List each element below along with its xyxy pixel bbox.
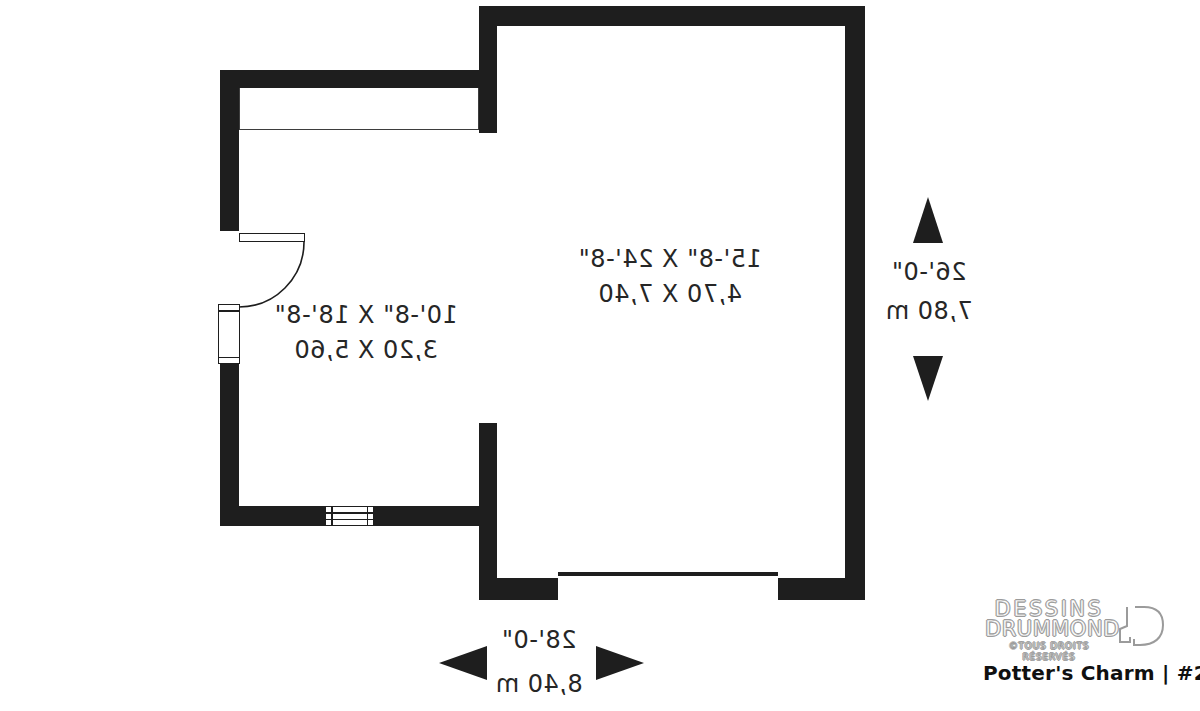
vertical-dim-metric: 7,80 m [885,292,972,331]
louvered-vent-symbol [325,506,374,526]
window-mullion [219,310,239,312]
logo-line2: DRUMMOND [985,619,1113,639]
garage-door-line [558,572,778,576]
garage-metric: 4,70 X 7,40 [578,277,761,312]
dim-arrow-down-icon [913,356,943,401]
storage-shelf-band [239,88,479,130]
dim-arrow-left-icon [439,646,487,680]
wall-storage-top [220,70,479,89]
floor-plan-canvas: 15'-8" X 24'-8" 4,70 X 7,40 10'-8" X 18'… [0,0,1200,711]
garage-imperial: 15'-8" X 24'-8" [578,242,761,277]
wall-garage-top [479,6,865,26]
window-mullion [219,357,239,359]
horizontal-dimension-label: 28'-0" 8,40 m [495,618,582,706]
garage-dimension-label: 15'-8" X 24'-8" 4,70 X 7,40 [578,242,761,312]
plan-title: Potter's Charm | #2983 [983,661,1173,685]
vertical-dim-imperial: 26'-0" [885,253,972,292]
storage-metric: 3,20 X 5,60 [274,333,457,368]
window-symbol [218,304,240,364]
vent-end-cap [331,507,333,525]
vertical-dimension-label: 26'-0" 7,80 m [885,253,972,331]
dim-arrow-right-icon [596,646,644,680]
storage-dimension-label: 10'-8" X 18'-8" 3,20 X 5,60 [274,298,457,368]
wall-garage-bottom-right [778,578,865,600]
storage-imperial: 10'-8" X 18'-8" [274,298,457,333]
horizontal-dim-imperial: 28'-0" [495,618,582,662]
logo-line1: DESSINS [985,599,1113,619]
door-swing-symbol [239,233,305,242]
copyright-text: ©TOUS DROITS RÉSERVÉS [985,641,1113,663]
vent-end-cap [367,507,369,525]
dessins-drummond-logo: DESSINS DRUMMOND ©TOUS DROITS RÉSERVÉS [985,599,1167,663]
horizontal-dim-metric: 8,40 m [495,662,582,706]
dim-arrow-up-icon [913,197,943,243]
logo-wordmark: DESSINS DRUMMOND ©TOUS DROITS RÉSERVÉS [985,599,1113,663]
drummond-door-icon [1113,601,1167,651]
wall-storage-left-lower [220,363,239,526]
wall-garage-right [845,6,865,600]
wall-divider-upper [479,6,497,133]
door-lintel-line [220,229,239,231]
wall-storage-left-upper [220,70,239,229]
